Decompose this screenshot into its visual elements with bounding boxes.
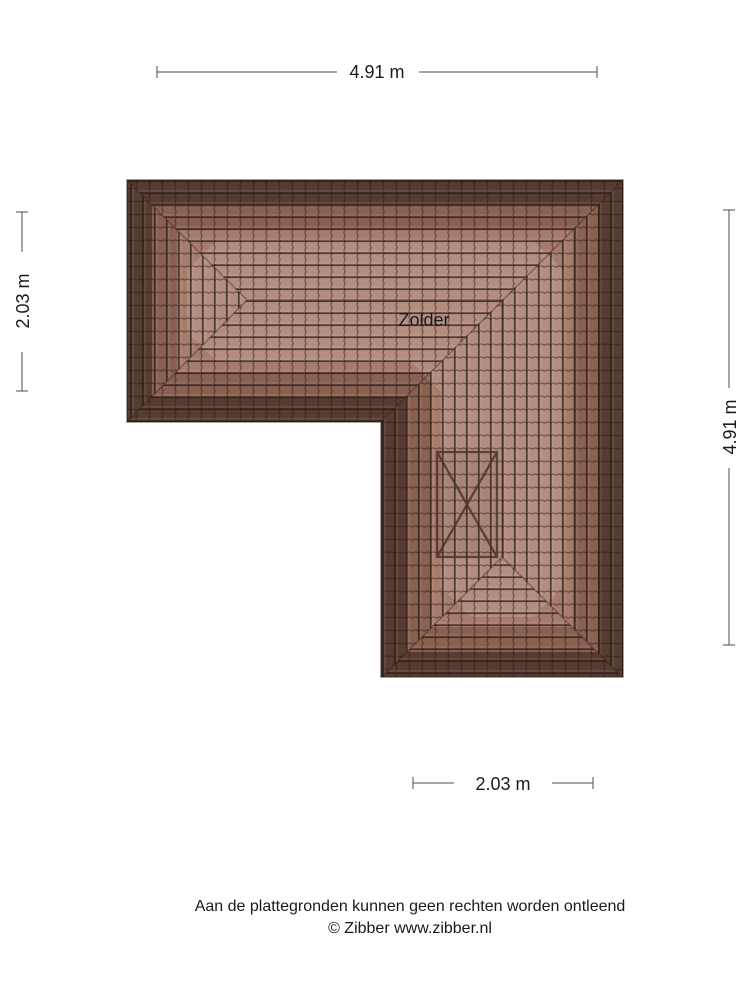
footer-copyright: © Zibber www.zibber.nl (328, 920, 492, 937)
roof-plan: Zolder (100, 150, 660, 710)
dimension-left: 2.03 m (13, 212, 33, 391)
dimension-bottom-label: 2.03 m (475, 774, 530, 794)
floor-plan-canvas: Zolder 4.91 m 2.03 m 4.91 m (0, 0, 750, 1000)
floor-plan-page: Zolder 4.91 m 2.03 m 4.91 m (0, 0, 750, 1000)
roof-window-marker (437, 452, 497, 557)
dimension-right: 4.91 m (720, 210, 740, 645)
dimension-top-label: 4.91 m (349, 62, 404, 82)
dimension-left-label: 2.03 m (13, 273, 33, 328)
dimension-top: 4.91 m (157, 62, 597, 82)
dimension-bottom: 2.03 m (413, 774, 593, 794)
footer-disclaimer: Aan de plattegronden kunnen geen rechten… (195, 898, 626, 915)
dimension-right-label: 4.91 m (720, 399, 740, 454)
footer: Aan de plattegronden kunnen geen rechten… (195, 898, 626, 937)
room-label: Zolder (398, 310, 449, 330)
